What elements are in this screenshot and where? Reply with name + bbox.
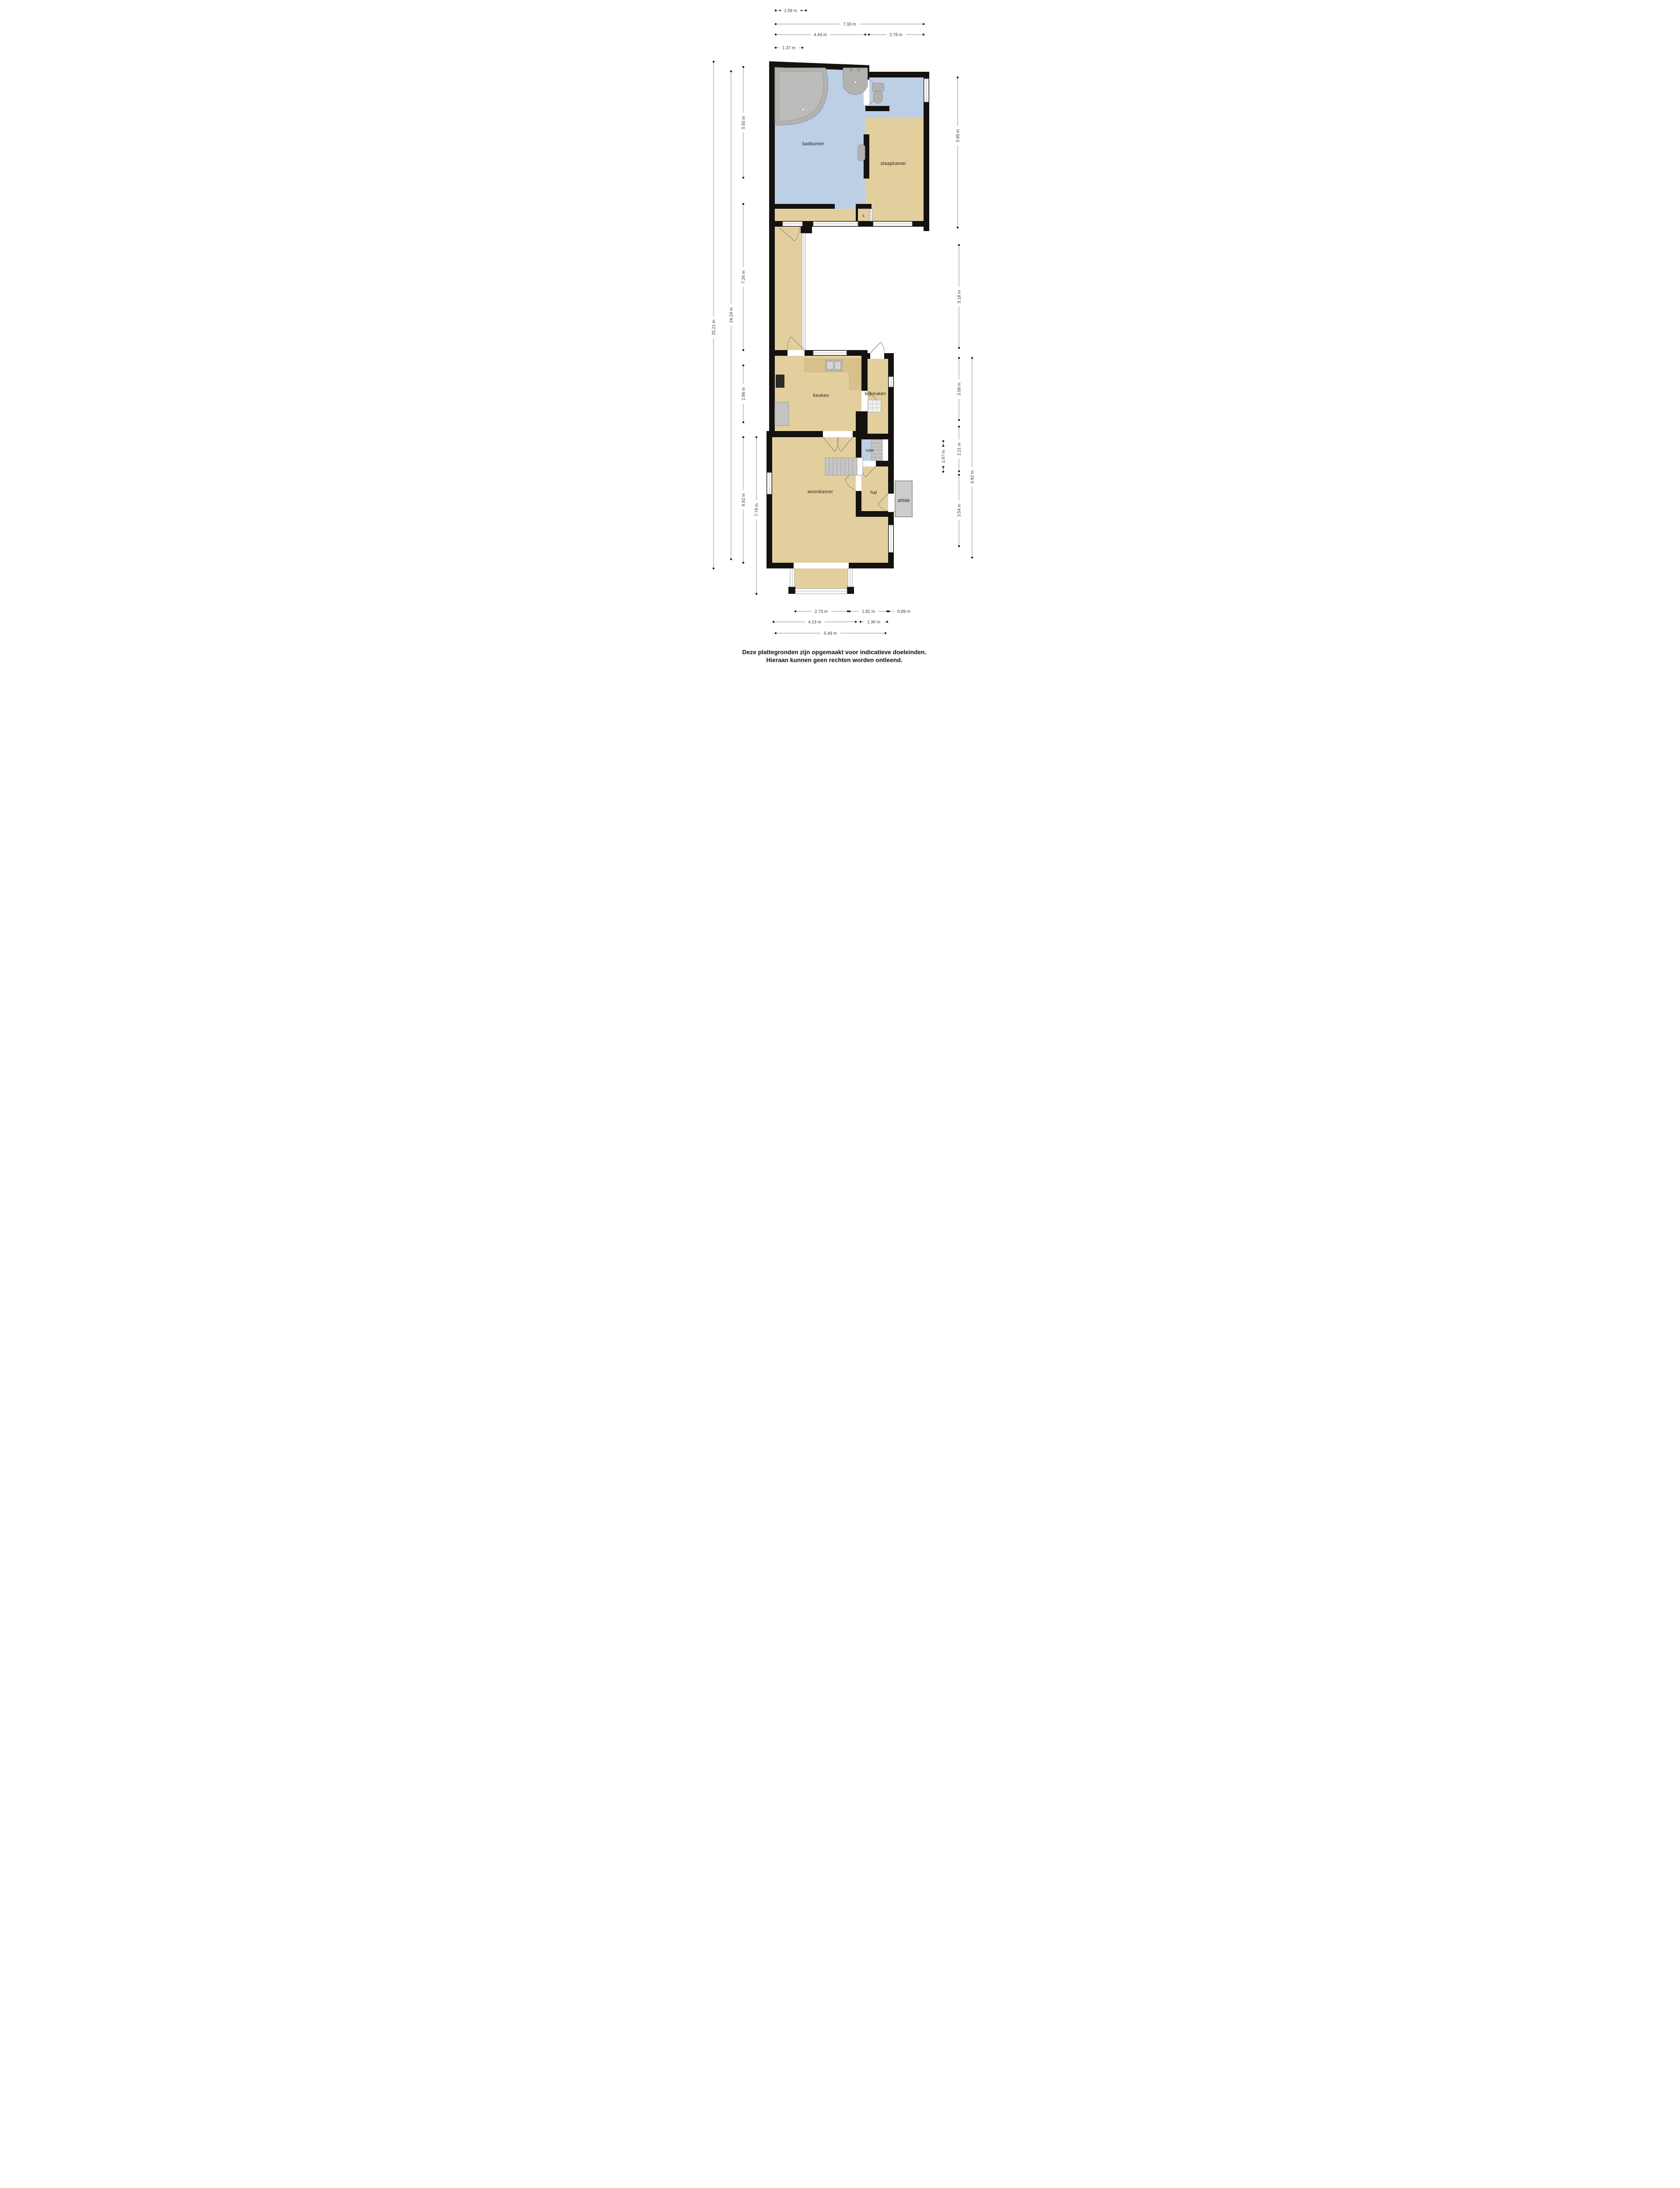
dimension-label: 4.44 m	[814, 33, 827, 38]
toilet-bowl-icon	[873, 91, 883, 103]
floorplan-canvas: badkamer slaapkamer k keuken bijkeuken t…	[588, 0, 1092, 672]
wall-closet-left	[856, 209, 858, 221]
room-label-bijkeuken: bijkeuken	[865, 391, 886, 396]
wall-bay-post-left	[788, 587, 795, 594]
staircase-icon	[825, 458, 863, 475]
room-label-afdak: afdak	[898, 498, 910, 503]
room-floor-slaapkamer	[865, 117, 924, 221]
dimensions-left: 25.21 m 24.24 m 5.50 m 7.26 m 2.94 m 6.8…	[711, 61, 759, 595]
disclaimer: Deze plattegronden zijn opgemaakt voor i…	[742, 649, 927, 663]
dimension-label: 2.94 m	[742, 387, 746, 400]
wall-left-upper	[769, 66, 775, 437]
wall-bay-post-right	[847, 587, 854, 594]
dimension-label: 7.26 m	[742, 270, 746, 284]
wall-woonkamer-bottom-left	[766, 563, 794, 568]
room-label-toilet: toilet	[866, 448, 874, 452]
dimension-label: 2.73 m	[815, 610, 828, 614]
dimension-label: 4.13 m	[808, 620, 821, 625]
washing-machine-icon	[868, 400, 881, 412]
door-gap-bijkeuken-back	[870, 353, 884, 359]
door-gap-frontdoor	[888, 494, 894, 512]
door-gap-keuken-woonkamer	[823, 431, 853, 437]
basin-drain-icon	[854, 81, 856, 83]
door-gap-keuken-corridor	[787, 350, 805, 356]
dimension-label: 7.33 m	[843, 22, 856, 27]
wall-toilet-nook	[865, 106, 889, 111]
wall-keuken-bijkeuken-lower	[861, 411, 868, 437]
door-leaf-bijkeuken-back	[870, 342, 881, 353]
wall-toilet-top	[856, 434, 888, 439]
dimension-label: 1.59 m	[784, 9, 797, 14]
wall-badkamer-bottom	[775, 204, 835, 209]
door-sliding-closet	[870, 209, 872, 221]
wall-hal-bottom	[856, 511, 894, 517]
fridge-counter-icon	[775, 402, 789, 426]
dimension-label: 5.95 m	[956, 129, 961, 142]
room-floor-hal	[861, 466, 888, 511]
dimension-label: 1.37 m	[782, 46, 795, 51]
room-label-woonkamer: woonkamer	[807, 489, 833, 494]
dimensions-bottom: 2.73 m 1.82 m 0.89 m 4.13 m 1.36 m 5.49 …	[773, 609, 914, 636]
dimension-label: 0.89 m	[897, 610, 910, 614]
toilet-cistern-icon	[872, 83, 884, 92]
wall-top-right	[865, 72, 929, 77]
dimension-label: 1.36 m	[867, 620, 880, 625]
room-label-hal: hal	[870, 490, 877, 495]
dimensions-right: 5.95 m 5.16 m 3.08 m 9.92 m 2.21 m 1.67 …	[941, 77, 975, 558]
room-label-keuken: keuken	[813, 393, 829, 398]
dimensions-top: 1.59 m 7.33 m 4.44 m 2.78 m 1.37 m	[775, 8, 924, 51]
dimension-label: 2.21 m	[957, 442, 962, 456]
room-floor-corridor	[775, 227, 802, 350]
tap-icon	[857, 68, 860, 71]
wall-keuken-bijkeuken-upper	[861, 356, 868, 391]
arrowhead-icon	[942, 444, 945, 447]
wall-glass-post	[801, 227, 812, 233]
disclaimer-line-2: Hieraan kunnen geen rechten worden ontle…	[766, 657, 902, 663]
arrowhead-icon	[942, 466, 945, 469]
room-label-slaapkamer: slaapkamer	[881, 161, 906, 166]
dimension-label: 3.54 m	[957, 504, 962, 517]
wall-closet-top	[856, 204, 871, 209]
dimension-label: 1.67 m	[941, 450, 946, 463]
dimension-label: 1.82 m	[862, 610, 875, 614]
wall-woonkamer-left	[766, 431, 772, 568]
dimension-label: 25.21 m	[712, 319, 717, 335]
wall-woonkamer-bottom-right	[849, 563, 894, 568]
dimension-label: 3.08 m	[957, 382, 962, 396]
door-gap-toilet	[863, 461, 876, 466]
dimension-label: 24.24 m	[729, 307, 734, 323]
dimension-label: 5.49 m	[824, 631, 837, 636]
bath-faucet-icon	[802, 108, 805, 111]
wall-basin-icon	[858, 145, 865, 161]
dimension-label: 7.79 m	[755, 503, 759, 516]
stove-icon	[776, 375, 784, 388]
dimension-label: 5.16 m	[957, 290, 962, 303]
wall-keuken-bottom-left	[766, 431, 823, 437]
dimension-label: 5.50 m	[742, 116, 746, 129]
tap-icon	[850, 68, 853, 71]
room-label-badkamer: badkamer	[802, 141, 824, 147]
floorplan-page: badkamer slaapkamer k keuken bijkeuken t…	[588, 0, 1092, 672]
disclaimer-line-1: Deze plattegronden zijn opgemaakt voor i…	[742, 649, 927, 656]
dimension-label: 6.82 m	[742, 493, 746, 506]
dimension-label: 2.78 m	[889, 33, 903, 38]
dimension-label: 9.92 m	[970, 470, 975, 484]
room-floor-bay	[794, 568, 848, 589]
room-floor-strip	[775, 209, 856, 221]
